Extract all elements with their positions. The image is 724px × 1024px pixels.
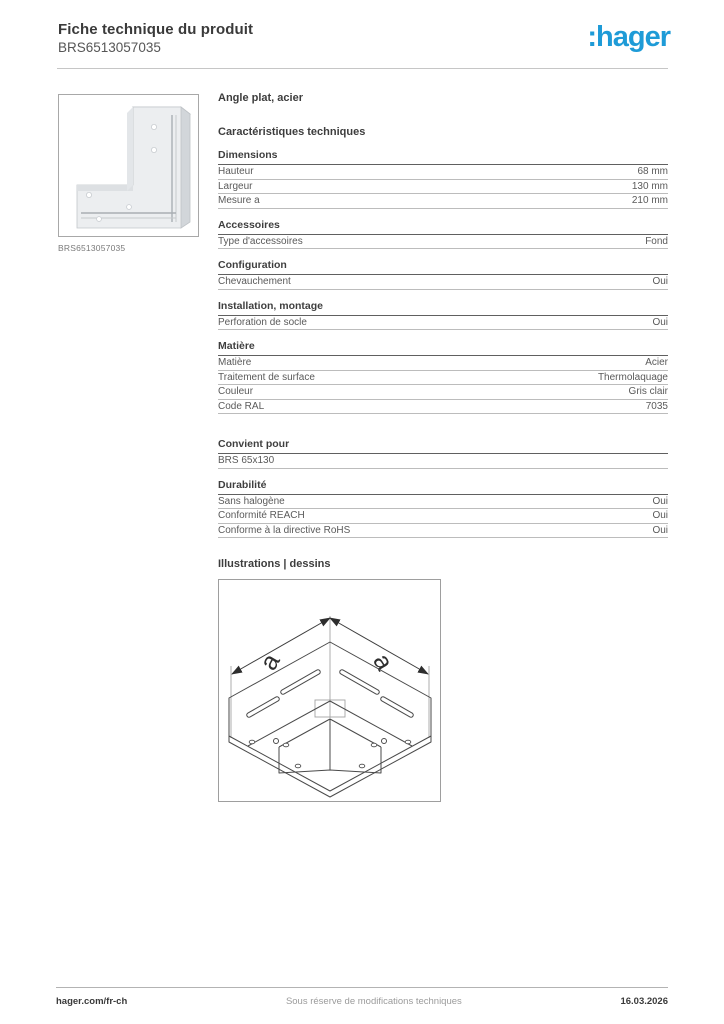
spec-row-label: Mesure a [218, 195, 260, 206]
spec-row-label: Matière [218, 357, 251, 368]
spec-row: Code RAL7035 [218, 400, 668, 415]
spec-section: MatièreMatièreAcierTraitement de surface… [218, 340, 668, 414]
spec-section-title: Convient pour [218, 438, 668, 454]
spec-row-value: 130 mm [632, 181, 668, 192]
spec-section-title: Dimensions [218, 149, 668, 165]
spec-row-label: Conformité REACH [218, 510, 305, 521]
spec-row: Type d'accessoiresFond [218, 235, 668, 250]
spec-row-label: Chevauchement [218, 276, 291, 287]
spec-row: BRS 65x130 [218, 454, 668, 469]
page-title: Fiche technique du produit [58, 20, 253, 39]
spec-heading: Caractéristiques techniques [218, 126, 668, 139]
product-image-caption: BRS6513057035 [58, 243, 125, 253]
spec-sections: DimensionsHauteur68 mmLargeur130 mmMesur… [218, 149, 668, 538]
technical-drawing: a a [218, 579, 441, 802]
spec-section: AccessoiresType d'accessoiresFond [218, 219, 668, 250]
footer-disclaimer: Sous réserve de modifications techniques [286, 996, 462, 1007]
spec-row: Perforation de socleOui [218, 316, 668, 331]
spec-row: Mesure a210 mm [218, 194, 668, 209]
header: Fiche technique du produit BRS6513057035 [58, 20, 253, 57]
footer-divider [56, 987, 668, 988]
spec-row: Largeur130 mm [218, 180, 668, 195]
spec-row-label: Perforation de socle [218, 317, 307, 328]
spec-row-value: Thermolaquage [598, 372, 668, 383]
spec-row: Hauteur68 mm [218, 165, 668, 180]
product-image [58, 94, 199, 237]
spec-row-value: Oui [652, 317, 668, 328]
spec-row: Sans halogèneOui [218, 495, 668, 510]
spec-column: Angle plat, acier Caractéristiques techn… [218, 92, 668, 802]
spec-row: Conformité REACHOui [218, 509, 668, 524]
dimension-label-a-left: a [254, 649, 285, 675]
spec-row-value: Oui [652, 276, 668, 287]
spec-section: ConfigurationChevauchementOui [218, 259, 668, 290]
spec-row: Traitement de surfaceThermolaquage [218, 371, 668, 386]
illustrations-heading: Illustrations | dessins [218, 558, 668, 571]
header-divider [57, 68, 668, 69]
spec-row-label: Type d'accessoires [218, 236, 303, 247]
spec-row-value: Oui [652, 525, 668, 536]
spec-section: DimensionsHauteur68 mmLargeur130 mmMesur… [218, 149, 668, 209]
spec-row-value: Oui [652, 496, 668, 507]
spec-row-label: Sans halogène [218, 496, 285, 507]
spec-row: MatièreAcier [218, 356, 668, 371]
corner-dimension-drawing-icon: a a [219, 580, 440, 801]
spec-row-value: 7035 [646, 401, 668, 412]
spec-row-value: 68 mm [637, 166, 668, 177]
product-name: Angle plat, acier [218, 92, 668, 105]
spec-section-title: Installation, montage [218, 300, 668, 316]
datasheet-page: Fiche technique du produit BRS6513057035… [0, 0, 724, 1024]
footer-date: 16.03.2026 [620, 996, 668, 1007]
spec-row-value: Fond [645, 236, 668, 247]
spec-row-label: Couleur [218, 386, 253, 397]
spec-row-value: Gris clair [629, 386, 668, 397]
spec-section-title: Matière [218, 340, 668, 356]
spec-row-label: Hauteur [218, 166, 254, 177]
footer-site-link[interactable]: hager.com/fr-ch [56, 996, 127, 1007]
hager-logo: :hager [587, 22, 670, 52]
spec-row-value: Oui [652, 510, 668, 521]
spec-section-title: Accessoires [218, 219, 668, 235]
spec-row: Conforme à la directive RoHSOui [218, 524, 668, 539]
spec-row-value: 210 mm [632, 195, 668, 206]
spec-section-title: Configuration [218, 259, 668, 275]
spec-section: Installation, montagePerforation de socl… [218, 300, 668, 331]
spec-section: Convient pourBRS 65x130 [218, 438, 668, 469]
spec-row-label: Largeur [218, 181, 252, 192]
spec-row-label: Conforme à la directive RoHS [218, 525, 350, 536]
spec-row-label: BRS 65x130 [218, 455, 274, 466]
spec-row-label: Traitement de surface [218, 372, 315, 383]
spec-section: DurabilitéSans halogèneOuiConformité REA… [218, 479, 668, 539]
footer: hager.com/fr-ch Sous réserve de modifica… [56, 996, 668, 1007]
spec-row: ChevauchementOui [218, 275, 668, 290]
product-code: BRS6513057035 [58, 39, 253, 57]
spec-row-value: Acier [645, 357, 668, 368]
spec-section-title: Durabilité [218, 479, 668, 495]
angle-product-render-icon [59, 95, 198, 236]
spec-row-label: Code RAL [218, 401, 264, 412]
spec-row: CouleurGris clair [218, 385, 668, 400]
